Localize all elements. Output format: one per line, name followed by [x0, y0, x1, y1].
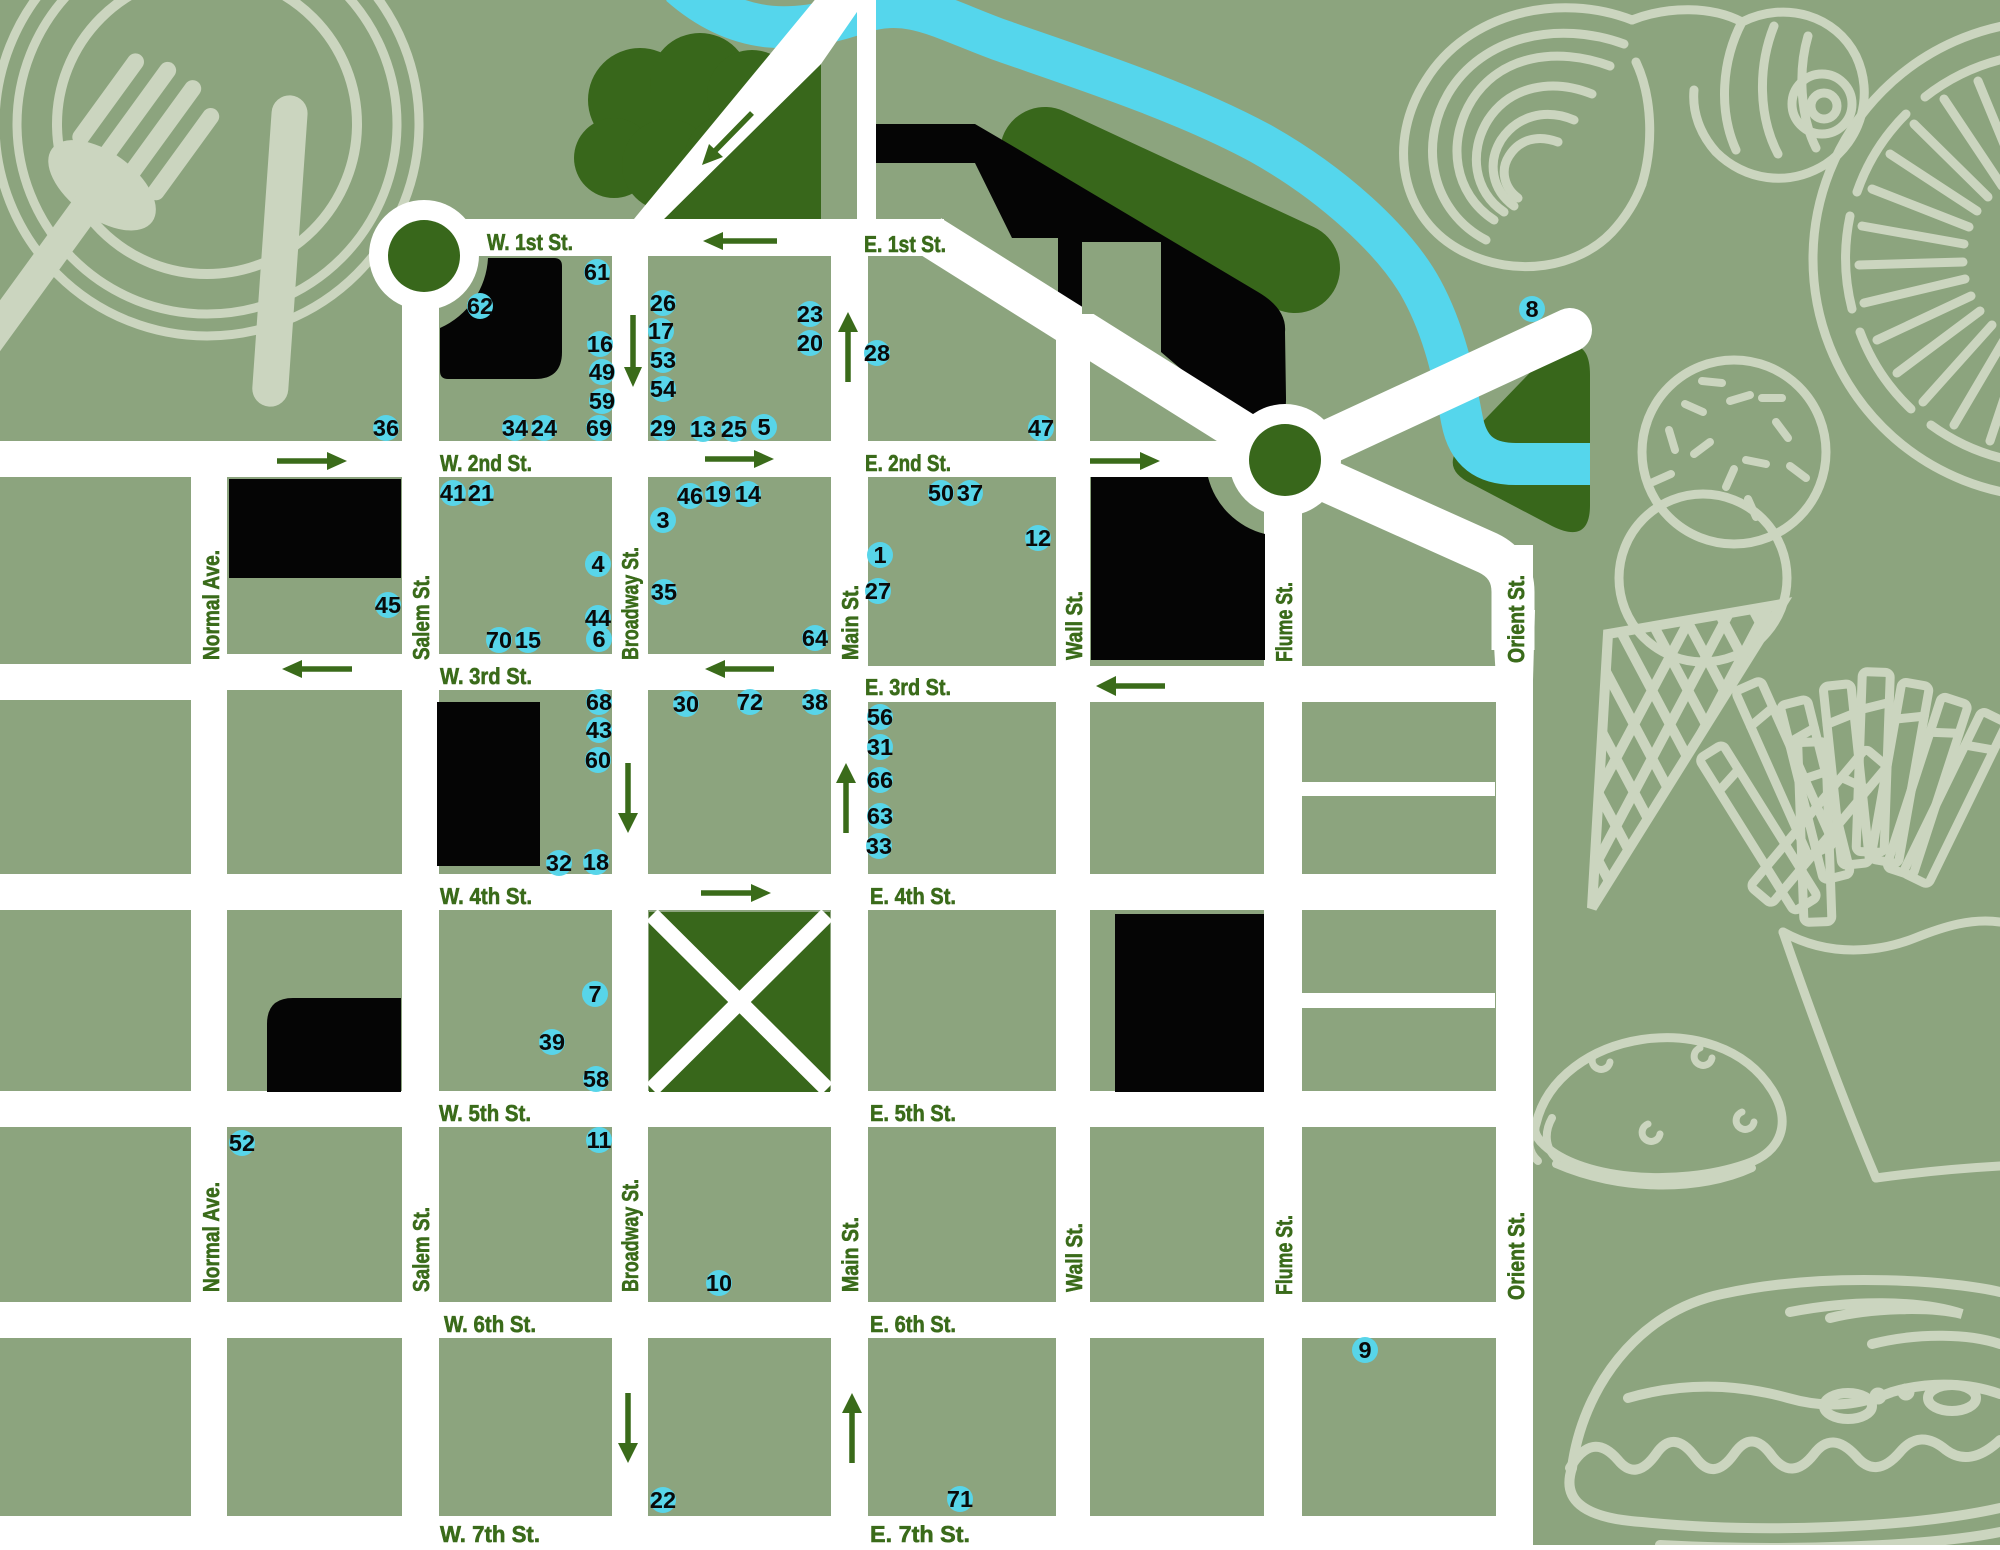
svg-text:62: 62: [467, 293, 493, 319]
svg-text:Flume St.: Flume St.: [1271, 582, 1297, 662]
svg-text:71: 71: [947, 1486, 973, 1512]
svg-text:36: 36: [373, 415, 399, 441]
svg-text:Orient St.: Orient St.: [1503, 1212, 1529, 1300]
svg-text:W. 3rd St.: W. 3rd St.: [440, 663, 532, 689]
svg-text:W. 2nd St.: W. 2nd St.: [440, 450, 532, 476]
svg-text:66: 66: [867, 767, 893, 793]
svg-text:6: 6: [592, 626, 605, 652]
svg-text:45: 45: [375, 592, 401, 618]
svg-text:37: 37: [957, 480, 983, 506]
svg-text:46: 46: [677, 483, 703, 509]
svg-text:30: 30: [673, 691, 699, 717]
svg-text:E. 3rd St.: E. 3rd St.: [865, 674, 951, 700]
svg-text:W. 4th St.: W. 4th St.: [440, 883, 532, 909]
svg-text:Main St.: Main St.: [837, 585, 863, 660]
svg-text:W. 5th St.: W. 5th St.: [439, 1100, 531, 1126]
svg-text:3: 3: [656, 507, 669, 533]
svg-text:60: 60: [585, 747, 611, 773]
svg-text:Normal Ave.: Normal Ave.: [198, 1182, 224, 1292]
svg-text:20: 20: [797, 330, 823, 356]
svg-text:24: 24: [531, 415, 557, 441]
svg-text:52: 52: [229, 1130, 255, 1156]
svg-text:Broadway St.: Broadway St.: [617, 1179, 643, 1292]
svg-text:33: 33: [866, 833, 892, 859]
svg-text:E. 2nd St.: E. 2nd St.: [865, 450, 951, 476]
svg-text:26: 26: [650, 290, 676, 316]
svg-text:W. 1st St.: W. 1st St.: [487, 229, 573, 255]
svg-text:54: 54: [650, 376, 676, 402]
svg-text:Broadway St.: Broadway St.: [617, 547, 643, 660]
svg-text:64: 64: [802, 625, 828, 651]
svg-text:25: 25: [721, 416, 747, 442]
svg-text:34: 34: [502, 415, 528, 441]
svg-text:Wall St.: Wall St.: [1061, 1223, 1087, 1292]
svg-text:50: 50: [928, 480, 954, 506]
svg-text:27: 27: [865, 578, 891, 604]
svg-text:59: 59: [589, 388, 615, 414]
svg-text:35: 35: [651, 579, 677, 605]
svg-text:19: 19: [705, 481, 731, 507]
svg-text:12: 12: [1025, 525, 1051, 551]
svg-text:69: 69: [586, 415, 612, 441]
svg-text:28: 28: [864, 340, 890, 366]
svg-text:16: 16: [587, 331, 613, 357]
svg-text:4: 4: [591, 551, 604, 577]
svg-text:38: 38: [802, 689, 828, 715]
svg-text:70: 70: [486, 627, 512, 653]
svg-text:43: 43: [586, 717, 612, 743]
svg-text:39: 39: [539, 1029, 565, 1055]
svg-text:17: 17: [648, 318, 674, 344]
svg-text:56: 56: [867, 704, 893, 730]
svg-text:Salem St.: Salem St.: [408, 575, 434, 660]
svg-text:E. 5th St.: E. 5th St.: [870, 1100, 956, 1126]
svg-text:E. 4th St.: E. 4th St.: [870, 883, 956, 909]
svg-text:18: 18: [583, 849, 609, 875]
svg-text:W. 7th St.: W. 7th St.: [440, 1521, 540, 1545]
svg-text:31: 31: [867, 734, 893, 760]
svg-text:Wall St.: Wall St.: [1061, 591, 1087, 660]
svg-text:47: 47: [1028, 415, 1054, 441]
svg-text:29: 29: [650, 415, 676, 441]
svg-text:11: 11: [587, 1127, 612, 1153]
svg-text:Normal Ave.: Normal Ave.: [198, 550, 224, 660]
svg-text:Orient St.: Orient St.: [1503, 575, 1529, 663]
svg-text:72: 72: [737, 689, 763, 715]
svg-text:49: 49: [589, 359, 615, 385]
svg-text:Flume St.: Flume St.: [1271, 1215, 1297, 1295]
svg-text:13: 13: [690, 416, 716, 442]
svg-text:9: 9: [1358, 1337, 1371, 1363]
svg-text:15: 15: [515, 627, 541, 653]
svg-text:23: 23: [797, 301, 823, 327]
svg-text:61: 61: [584, 259, 610, 285]
svg-text:14: 14: [735, 481, 761, 507]
svg-text:1: 1: [873, 542, 886, 568]
svg-text:22: 22: [650, 1487, 676, 1513]
svg-text:41: 41: [440, 480, 466, 506]
svg-text:8: 8: [1525, 296, 1538, 322]
svg-text:21: 21: [468, 480, 494, 506]
svg-text:63: 63: [867, 803, 893, 829]
svg-text:7: 7: [588, 981, 601, 1007]
svg-text:32: 32: [546, 850, 572, 876]
svg-text:68: 68: [586, 689, 612, 715]
svg-text:Salem St.: Salem St.: [408, 1207, 434, 1292]
svg-text:Main St.: Main St.: [837, 1217, 863, 1292]
svg-text:53: 53: [650, 347, 676, 373]
svg-text:W. 6th St.: W. 6th St.: [444, 1311, 536, 1337]
svg-text:E. 1st St.: E. 1st St.: [864, 231, 946, 257]
svg-text:E. 6th St.: E. 6th St.: [870, 1311, 956, 1337]
svg-text:5: 5: [757, 414, 770, 440]
svg-text:58: 58: [583, 1066, 609, 1092]
svg-text:10: 10: [706, 1270, 732, 1296]
svg-text:E. 7th St.: E. 7th St.: [870, 1521, 970, 1545]
